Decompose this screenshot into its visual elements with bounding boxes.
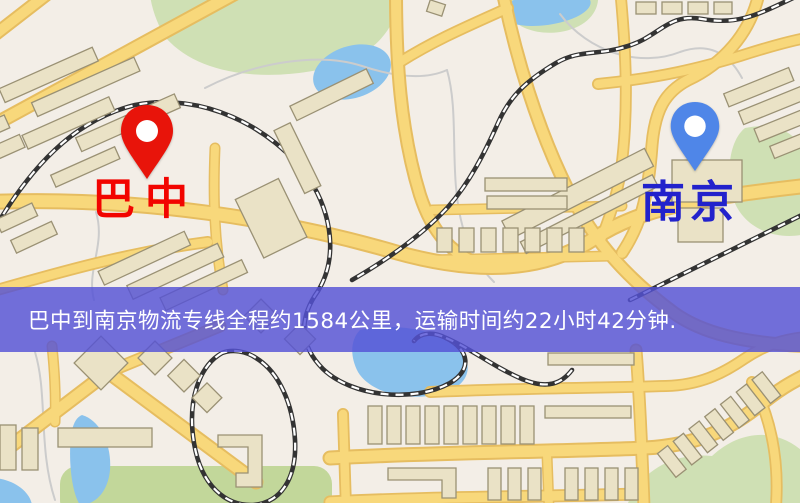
origin-marker-red-pin-icon[interactable] xyxy=(117,103,177,181)
destination-marker-blue-pin-icon[interactable] xyxy=(667,100,723,173)
route-info-banner: 巴中到南京物流专线全程约1584公里，运输时间约22小时42分钟. xyxy=(0,287,800,352)
route-info-text: 巴中到南京物流专线全程约1584公里，运输时间约22小时42分钟. xyxy=(28,304,677,335)
map-view[interactable]: 巴中 南京 巴中到南京物流专线全程约1584公里，运输时间约22小时42分钟. xyxy=(0,0,800,503)
map-canvas[interactable] xyxy=(0,0,800,503)
origin-city-label: 巴中 xyxy=(92,179,198,222)
destination-city-label: 南京 xyxy=(641,181,739,225)
